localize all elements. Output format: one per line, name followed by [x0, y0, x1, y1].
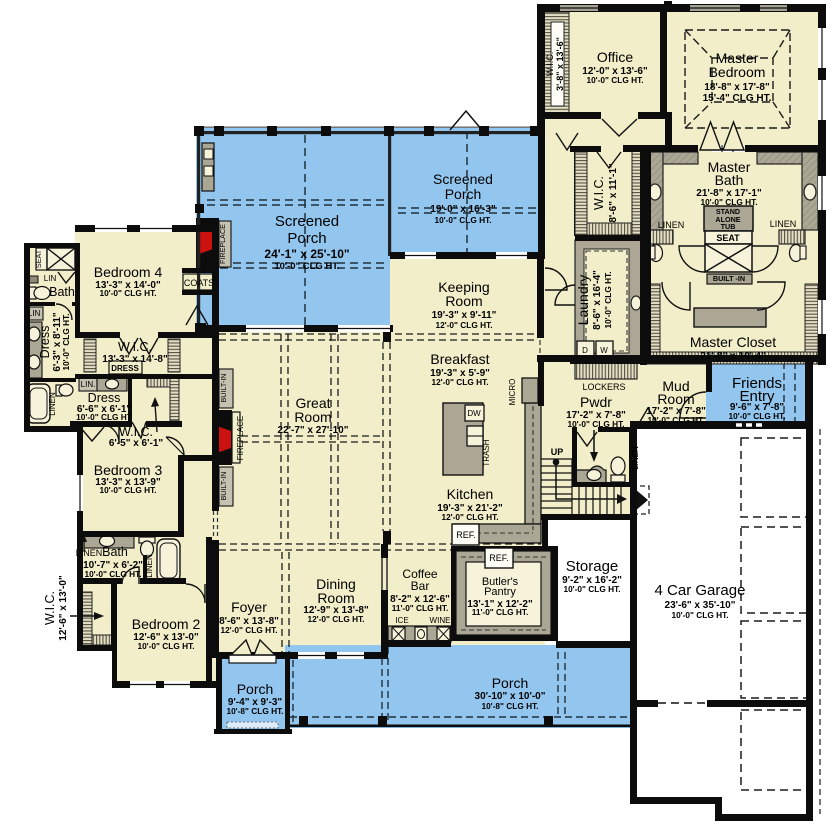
svg-text:TUB: TUB	[721, 222, 736, 231]
svg-text:Foyer: Foyer	[231, 599, 267, 615]
svg-text:WINE: WINE	[430, 616, 451, 625]
svg-text:10'-0" CLG HT.: 10'-0" CLG HT.	[84, 569, 141, 579]
svg-text:10'-8" CLG HT.: 10'-8" CLG HT.	[481, 701, 538, 711]
svg-text:LINEN: LINEN	[76, 548, 103, 558]
svg-text:Room: Room	[657, 391, 694, 407]
svg-text:Bath: Bath	[102, 545, 128, 559]
svg-text:FIREPLACE: FIREPLACE	[236, 416, 245, 460]
svg-text:Screened: Screened	[433, 171, 493, 187]
svg-text:Screened: Screened	[275, 213, 339, 230]
svg-text:Bedroom 2: Bedroom 2	[132, 616, 201, 632]
svg-text:UP: UP	[551, 447, 564, 457]
svg-text:Porch: Porch	[445, 186, 482, 202]
svg-text:LINEN: LINEN	[770, 219, 797, 229]
svg-text:15'-4" CLG HT.: 15'-4" CLG HT.	[703, 93, 772, 104]
svg-text:FIREPLACE: FIREPLACE	[218, 224, 227, 264]
svg-text:12'-6" x 13'-0": 12'-6" x 13'-0"	[58, 575, 69, 641]
svg-text:21'-8" x 10'-4": 21'-8" x 10'-4"	[700, 351, 766, 362]
svg-text:LIN: LIN	[28, 309, 41, 318]
svg-text:Bedroom 3: Bedroom 3	[94, 462, 163, 478]
svg-text:W.I.C.: W.I.C.	[592, 176, 606, 210]
svg-text:12'-0" CLG HT.: 12'-0" CLG HT.	[220, 625, 277, 635]
svg-text:10'-0" CLG HT.: 10'-0" CLG HT.	[671, 610, 728, 620]
svg-text:BUILT-IN: BUILT-IN	[219, 373, 228, 402]
svg-text:6'-5" x 6'-1": 6'-5" x 6'-1"	[109, 438, 164, 449]
svg-text:Bedroom: Bedroom	[709, 64, 766, 80]
svg-text:Breakfast: Breakfast	[430, 351, 489, 367]
svg-text:Office: Office	[597, 49, 634, 65]
svg-text:10'-0" CLG HT.: 10'-0" CLG HT.	[99, 288, 156, 298]
svg-text:Pwdr: Pwdr	[580, 394, 612, 410]
svg-text:10'-0" CLG HT.: 10'-0" CLG HT.	[567, 419, 624, 429]
svg-text:COATS: COATS	[184, 278, 214, 288]
svg-text:LINEN: LINEN	[658, 220, 685, 230]
svg-text:LINEN: LINEN	[631, 446, 640, 470]
svg-text:LIN.: LIN.	[81, 380, 96, 389]
svg-text:Bath: Bath	[49, 285, 75, 299]
svg-text:Bar: Bar	[411, 579, 430, 593]
svg-text:Porch: Porch	[287, 230, 326, 247]
svg-text:Storage: Storage	[566, 558, 619, 575]
svg-text:TRASH: TRASH	[482, 439, 491, 466]
svg-text:10'-0" CLG HT: 10'-0" CLG HT	[76, 412, 132, 422]
svg-text:Room: Room	[294, 409, 331, 425]
svg-text:4 Car Garage: 4 Car Garage	[655, 582, 746, 599]
svg-text:Laundry: Laundry	[575, 275, 591, 326]
svg-text:ICE: ICE	[395, 616, 408, 625]
svg-text:LOCKERS: LOCKERS	[582, 382, 625, 392]
svg-text:Pantry: Pantry	[484, 586, 516, 598]
svg-text:10'-0" CLG HT.: 10'-0" CLG HT.	[61, 313, 71, 370]
svg-text:10'-0" CLG HT.: 10'-0" CLG HT.	[563, 584, 620, 594]
svg-text:10'-0" CLG HT.: 10'-0" CLG HT.	[603, 271, 613, 328]
svg-text:SEAT: SEAT	[716, 233, 740, 243]
svg-text:12'-0" CLG HT.: 12'-0" CLG HT.	[431, 377, 488, 387]
svg-text:19'-0" x 16'-3": 19'-0" x 16'-3"	[430, 204, 496, 215]
svg-text:LINEN: LINEN	[145, 554, 154, 578]
svg-text:10'-0" CLG HT.: 10'-0" CLG HT.	[137, 641, 194, 651]
svg-text:REF.: REF.	[489, 553, 509, 563]
svg-text:10'-0" CLG HT.: 10'-0" CLG HT.	[647, 415, 704, 425]
svg-text:10'-0" CLG HT.: 10'-0" CLG HT.	[99, 485, 156, 495]
svg-text:10'-8" CLG HT.: 10'-8" CLG HT.	[226, 706, 283, 716]
svg-text:Room: Room	[445, 293, 482, 309]
svg-text:LIN: LIN	[44, 274, 57, 283]
svg-text:22'-7" x 27'-10": 22'-7" x 27'-10"	[278, 425, 349, 436]
svg-text:DRESS: DRESS	[111, 364, 139, 373]
svg-text:10'-0" CLG HT.: 10'-0" CLG HT.	[274, 261, 339, 272]
svg-text:Master Closet: Master Closet	[690, 334, 776, 350]
svg-text:10'-0" CLG HT.: 10'-0" CLG HT.	[728, 411, 785, 421]
svg-text:10'-0" CLG HT.: 10'-0" CLG HT.	[434, 215, 491, 225]
svg-text:D: D	[582, 346, 588, 355]
svg-text:BUILT -IN: BUILT -IN	[713, 274, 745, 283]
svg-text:W.I.C.: W.I.C.	[119, 425, 153, 439]
svg-text:3'-8" x 13'-6": 3'-8" x 13'-6"	[555, 37, 565, 91]
svg-text:10'-0" CLG HT.: 10'-0" CLG HT.	[700, 197, 757, 207]
svg-text:Kitchen: Kitchen	[447, 486, 494, 502]
svg-text:18'-8" x 17'-8": 18'-8" x 17'-8"	[704, 82, 770, 93]
svg-text:SEAT: SEAT	[34, 249, 43, 268]
svg-text:W.I.C.: W.I.C.	[43, 591, 57, 625]
svg-text:LINEN: LINEN	[48, 392, 57, 416]
svg-text:12'-0" CLG HT.: 12'-0" CLG HT.	[441, 512, 498, 522]
svg-text:12'-0" CLG HT.: 12'-0" CLG HT.	[435, 320, 492, 330]
svg-text:Bath: Bath	[715, 172, 744, 188]
svg-text:DW: DW	[467, 409, 481, 418]
svg-text:W.I.C.: W.I.C.	[118, 340, 152, 354]
svg-text:BUILT-IN: BUILT-IN	[219, 471, 228, 500]
svg-text:Room: Room	[317, 590, 354, 606]
svg-text:8'-6" x 11'-1": 8'-6" x 11'-1"	[608, 163, 619, 223]
svg-text:Dress: Dress	[38, 326, 52, 359]
svg-text:11'-0" CLG HT.: 11'-0" CLG HT.	[392, 603, 449, 613]
svg-text:MICRO: MICRO	[508, 379, 517, 406]
svg-text:Dress: Dress	[88, 391, 121, 405]
svg-text:8'-6" x 16'-4": 8'-6" x 16'-4"	[592, 270, 603, 330]
svg-text:Bedroom 4: Bedroom 4	[94, 264, 163, 280]
svg-text:11'-0" CLG HT.: 11'-0" CLG HT.	[472, 607, 529, 617]
svg-text:W.I.C.: W.I.C.	[545, 52, 555, 77]
svg-text:Porch: Porch	[492, 675, 529, 691]
svg-text:REF.: REF.	[456, 530, 476, 540]
svg-text:10'-0" CLG HT.: 10'-0" CLG HT.	[586, 75, 643, 85]
svg-text:24'-1" x 25'-10": 24'-1" x 25'-10"	[264, 247, 349, 261]
svg-text:12'-0" CLG HT.: 12'-0" CLG HT.	[307, 614, 364, 624]
svg-text:W: W	[600, 346, 608, 355]
svg-text:Porch: Porch	[237, 681, 274, 697]
